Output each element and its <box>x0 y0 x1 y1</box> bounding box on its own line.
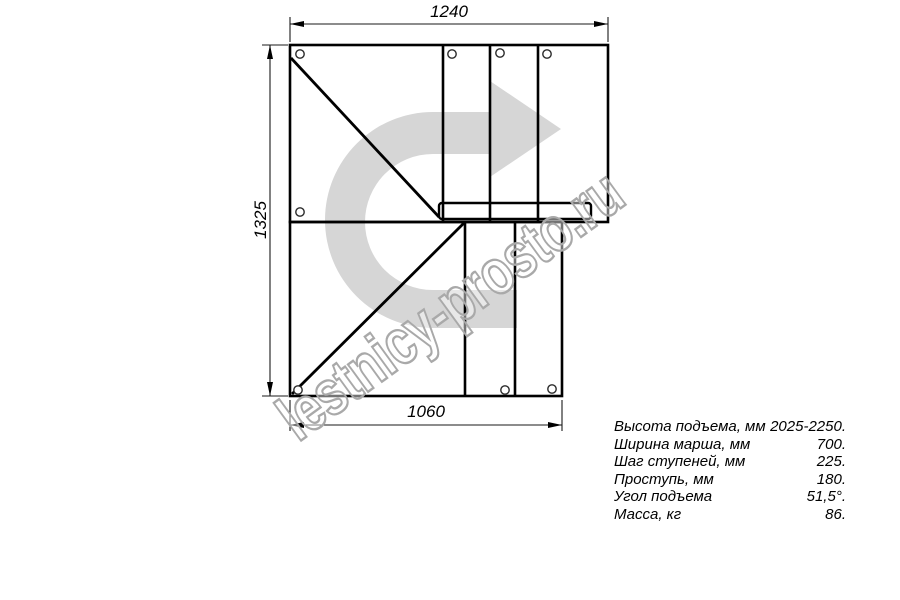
specs-table: Высота подъема, мм 2025-2250. Ширина мар… <box>614 418 846 523</box>
dim-left-label: 1325 <box>251 201 270 239</box>
spec-row-mass: Масса, кг 86. <box>614 506 846 524</box>
stringer-diagonals <box>291 58 464 394</box>
spec-row-flight-width: Ширина марша, мм 700. <box>614 436 846 454</box>
dim-bottom-label: 1060 <box>407 402 445 421</box>
spec-label: Масса, кг <box>614 506 681 524</box>
spec-value: 86. <box>825 506 846 524</box>
spec-value: 51,5°. <box>807 488 846 506</box>
step-plate <box>439 203 591 219</box>
spec-label: Высота подъема, мм <box>614 418 766 436</box>
dimension-lines <box>262 17 608 431</box>
spec-value: 225. <box>817 453 846 471</box>
dim-top-label: 1240 <box>430 2 468 21</box>
spec-value: 700. <box>817 436 846 454</box>
spec-label: Проступь, мм <box>614 471 714 489</box>
spec-row-height: Высота подъема, мм 2025-2250. <box>614 418 846 436</box>
spec-row-angle: Угол подъема 51,5°. <box>614 488 846 506</box>
spec-row-step-pitch: Шаг ступеней, мм 225. <box>614 453 846 471</box>
spec-label: Шаг ступеней, мм <box>614 453 745 471</box>
spec-value: 180. <box>817 471 846 489</box>
spec-label: Угол подъема <box>614 488 712 506</box>
spec-label: Ширина марша, мм <box>614 436 750 454</box>
spec-row-tread: Проступь, мм 180. <box>614 471 846 489</box>
stair-drawing-page: 1240 1325 1060 lestnicy-prosto.ru Высота… <box>0 0 900 600</box>
spec-value: 2025-2250. <box>770 418 846 436</box>
